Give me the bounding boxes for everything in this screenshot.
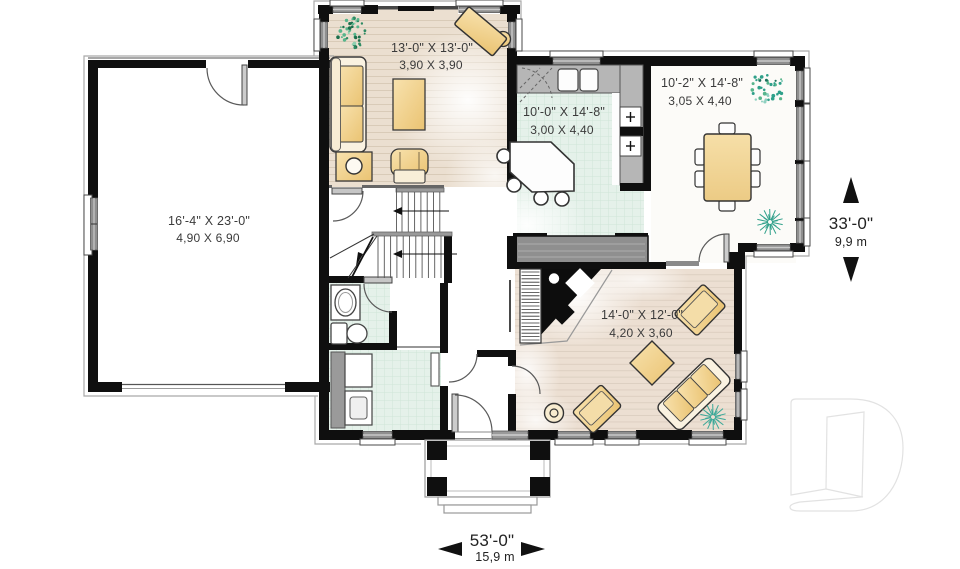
- svg-text:3,05 X 4,40: 3,05 X 4,40: [668, 94, 732, 108]
- svg-text:10'-0" X 14'-8": 10'-0" X 14'-8": [523, 105, 605, 119]
- svg-text:10'-2" X 14'-8": 10'-2" X 14'-8": [661, 76, 743, 90]
- svg-text:33'-0": 33'-0": [829, 214, 874, 233]
- svg-text:3,00 X 4,40: 3,00 X 4,40: [530, 123, 594, 137]
- svg-text:14'-0" X 12'-0": 14'-0" X 12'-0": [601, 308, 683, 322]
- svg-text:4,20 X 3,60: 4,20 X 3,60: [609, 326, 673, 340]
- svg-text:9,9 m: 9,9 m: [835, 235, 867, 249]
- svg-text:15,9 m: 15,9 m: [475, 550, 514, 564]
- svg-text:4,90 X 6,90: 4,90 X 6,90: [176, 231, 240, 245]
- svg-text:53'-0": 53'-0": [470, 531, 515, 550]
- svg-text:3,90 X 3,90: 3,90 X 3,90: [399, 58, 463, 72]
- svg-text:16'-4" X 23'-0": 16'-4" X 23'-0": [168, 214, 250, 228]
- svg-text:13'-0" X 13'-0": 13'-0" X 13'-0": [391, 41, 473, 55]
